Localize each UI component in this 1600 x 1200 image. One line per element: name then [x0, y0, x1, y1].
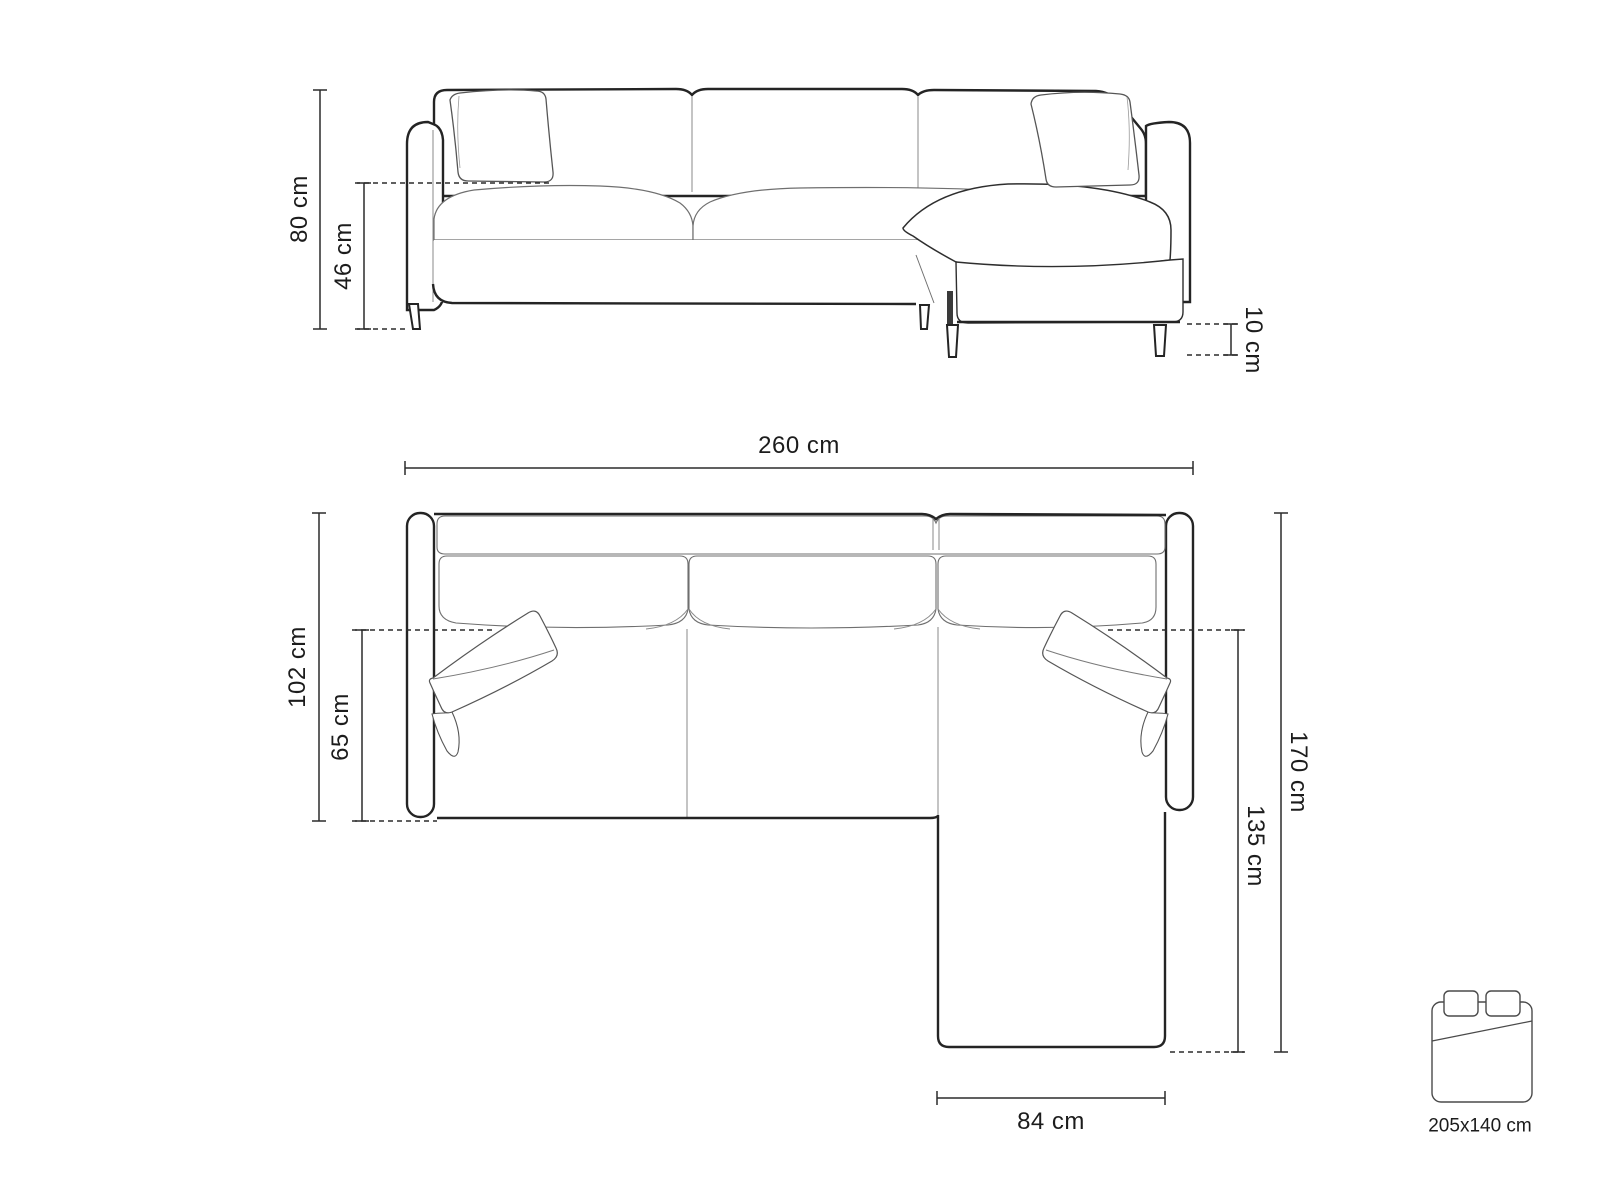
- dim-depth-line: [312, 513, 326, 821]
- bed-pillow-right: [1486, 991, 1520, 1016]
- dim-chaise-width-label: 84 cm: [1017, 1110, 1085, 1134]
- dim-chaise-length-label: 135 cm: [1243, 805, 1267, 887]
- top-backrest-cushions: [439, 556, 1156, 628]
- front-left-pillow: [450, 90, 553, 182]
- top-right-arm: [1166, 513, 1193, 810]
- front-view-drawing: [407, 89, 1190, 357]
- dim-seat-height-label: 46 cm: [332, 222, 356, 290]
- dim-seat-height-line: [357, 183, 371, 329]
- sleeping-area-label: 205x140 cm: [1428, 1117, 1532, 1136]
- dim-seat-depth-label: 65 cm: [329, 693, 353, 761]
- top-left-pillow: [429, 611, 557, 756]
- diagram-canvas: [0, 0, 1600, 1200]
- top-chaise-outline: [938, 812, 1165, 1047]
- dim-leg-height-label: 10 cm: [1241, 306, 1265, 374]
- dim-chaise-width-line: [937, 1091, 1165, 1105]
- dim-total-depth-label: 170 cm: [1286, 731, 1310, 813]
- bed-mattress: [1432, 1002, 1532, 1102]
- top-back-band: [437, 516, 1165, 554]
- bed-icon: [1432, 991, 1532, 1102]
- front-chaise-base: [956, 259, 1183, 323]
- dim-height-line: [313, 90, 327, 329]
- top-view-drawing: [407, 513, 1193, 1047]
- dim-depth-label: 102 cm: [286, 626, 310, 708]
- dim-width-label: 260 cm: [758, 434, 840, 458]
- dim-height-label: 80 cm: [288, 175, 312, 243]
- dim-width-line: [405, 461, 1193, 475]
- top-left-arm: [407, 513, 434, 817]
- dim-leg-height-line: [1224, 324, 1238, 355]
- front-seat-cushion-1: [434, 186, 693, 241]
- dim-seat-depth-line: [355, 630, 369, 821]
- front-right-pillow: [1031, 92, 1139, 187]
- top-right-pillow: [1043, 611, 1171, 756]
- sofa-dimension-diagram: 80 cm 46 cm 10 cm 260 cm 102 cm 65 cm 17…: [0, 0, 1600, 1200]
- bed-pillow-left: [1444, 991, 1478, 1016]
